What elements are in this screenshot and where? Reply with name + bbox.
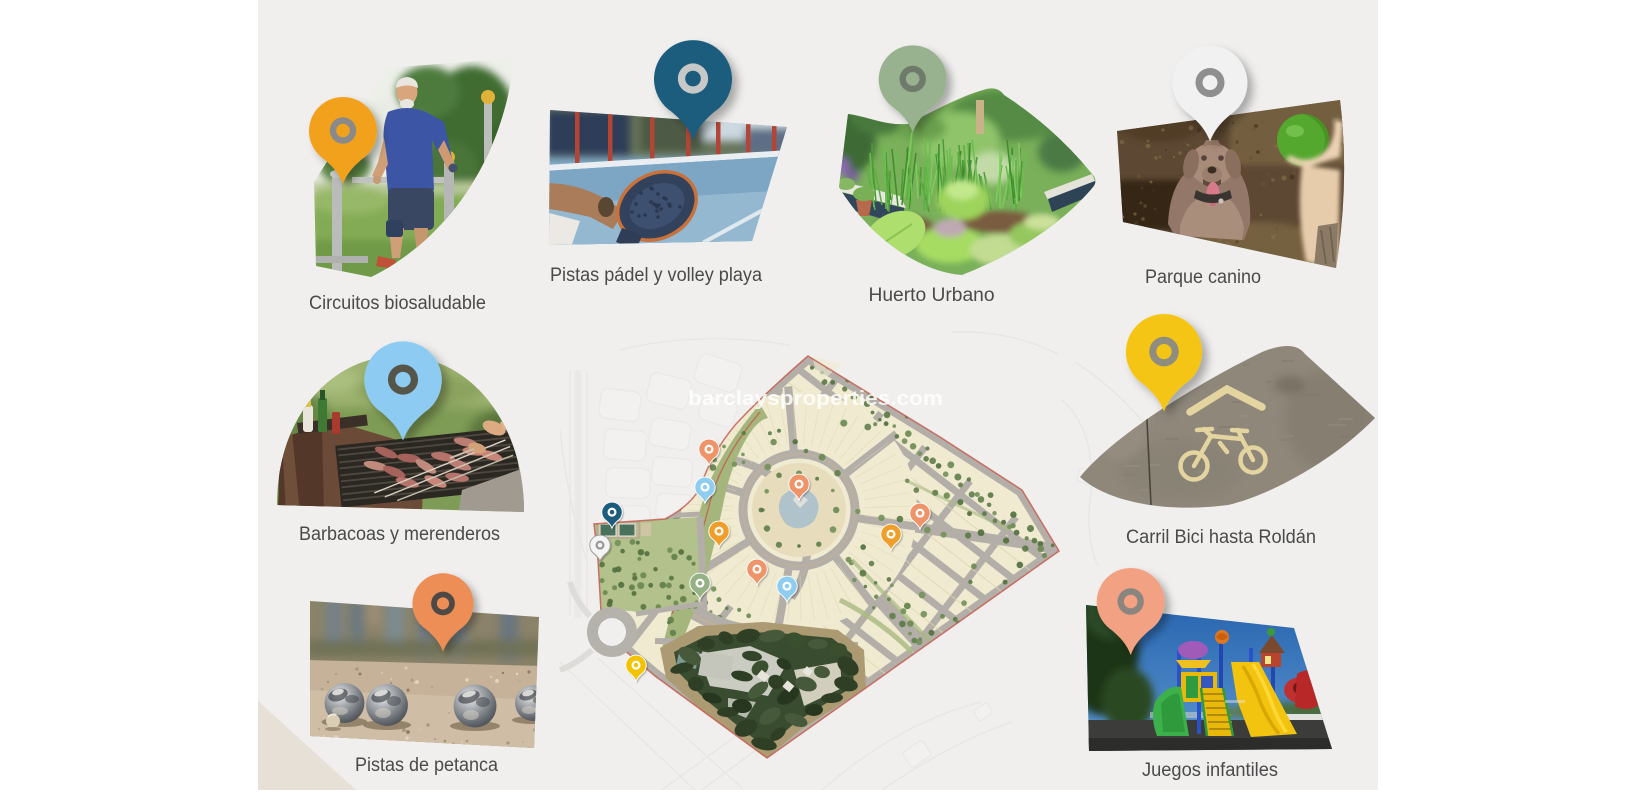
svg-text:Pistas de petanca: Pistas de petanca — [355, 755, 498, 776]
svg-text:Carril Bici hasta Roldán: Carril Bici hasta Roldán — [1126, 527, 1316, 548]
svg-text:Huerto Urbano: Huerto Urbano — [869, 285, 995, 306]
svg-text:Barbacoas y merenderos: Barbacoas y merenderos — [299, 524, 500, 545]
svg-text:Juegos infantiles: Juegos infantiles — [1142, 760, 1278, 781]
svg-text:Circuitos biosaludable: Circuitos biosaludable — [309, 293, 486, 314]
svg-text:barclaysproperties.com: barclaysproperties.com — [688, 388, 943, 410]
svg-text:Parque canino: Parque canino — [1145, 267, 1261, 288]
svg-text:Pistas pádel y volley playa: Pistas pádel y volley playa — [550, 265, 762, 286]
